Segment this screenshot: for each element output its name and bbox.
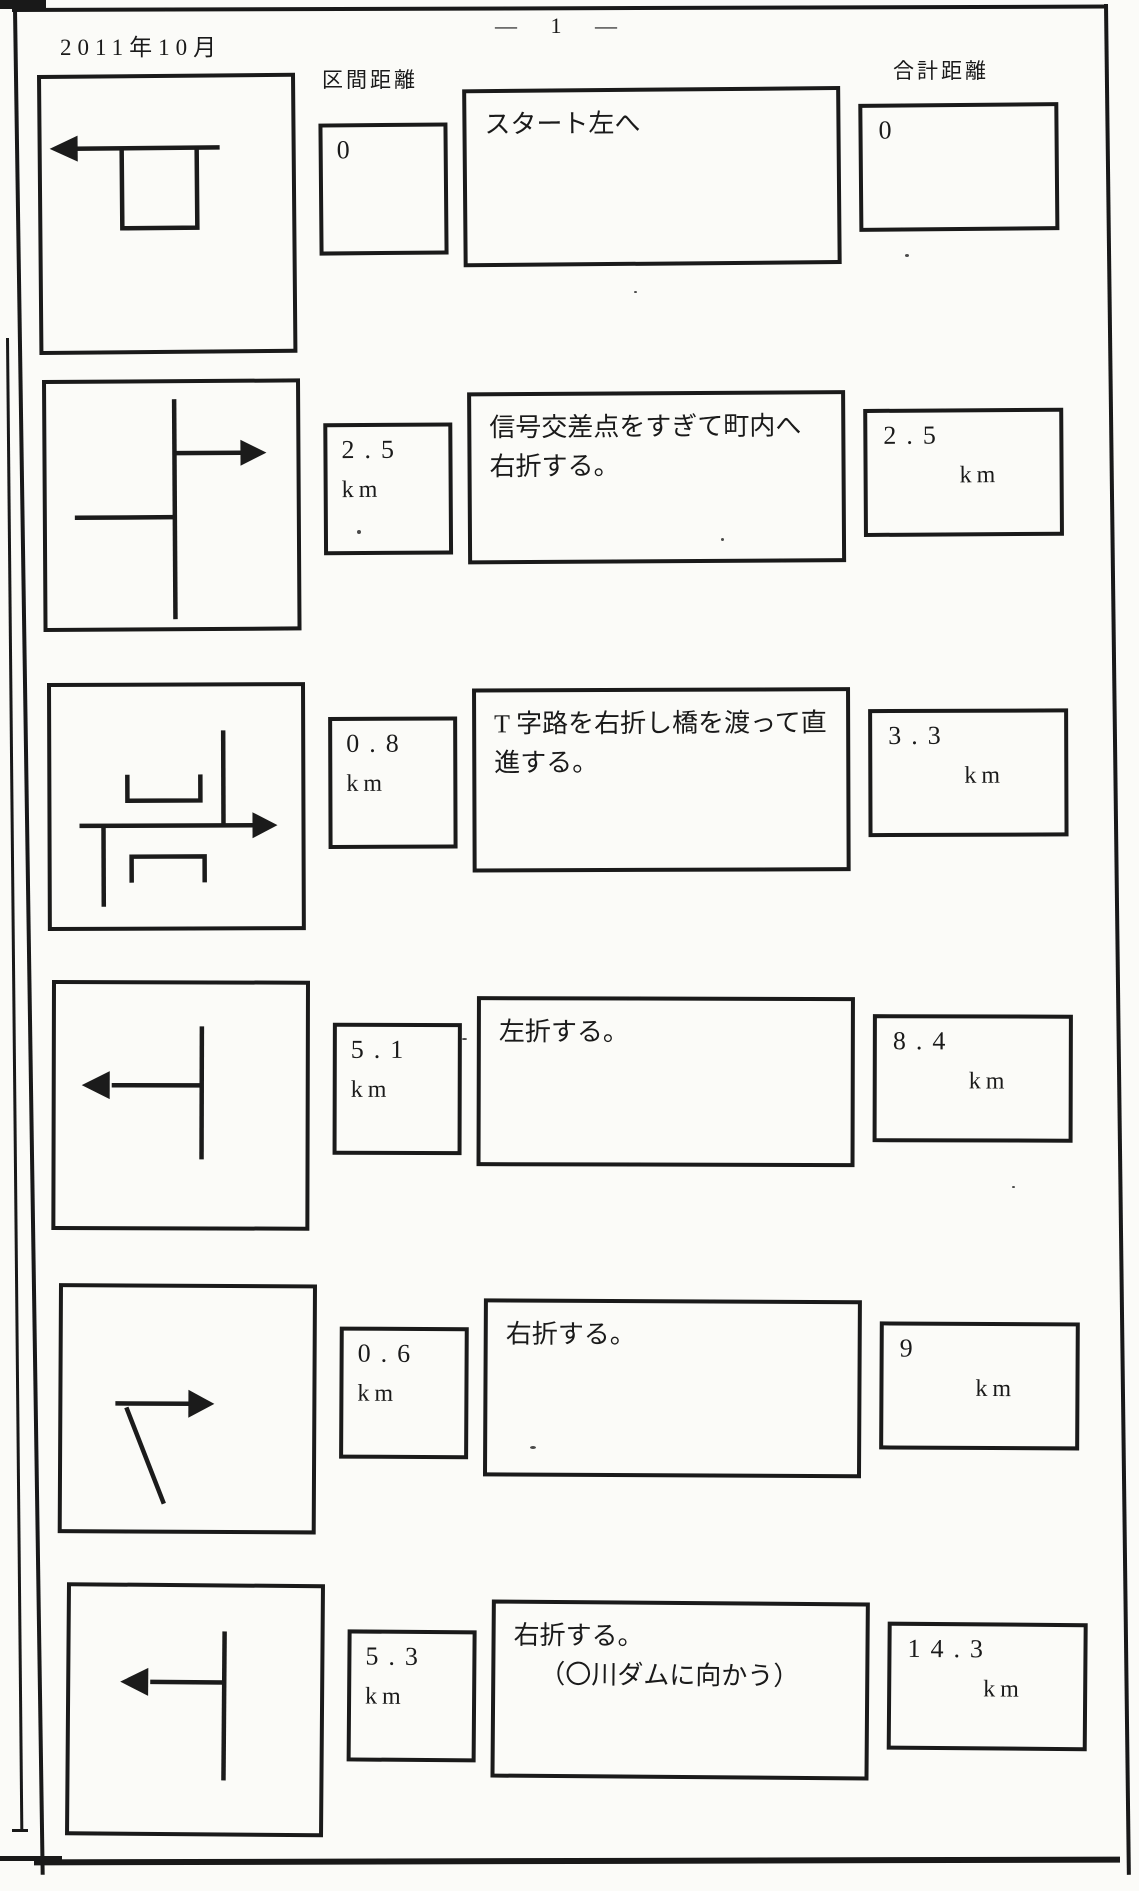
page-number: — 1 — xyxy=(495,13,631,39)
section-distance-unit: km xyxy=(351,1077,458,1104)
t-junction-route-arrow-left-icon xyxy=(55,984,306,1227)
route-diagram-box xyxy=(42,378,302,632)
route-diagram-box xyxy=(51,980,310,1231)
total-distance-value: 3.3 xyxy=(888,720,1064,751)
instruction-text: T 字路を右折し橋を渡って直進する。 xyxy=(494,703,828,782)
route-diagram-box xyxy=(47,682,306,931)
total-distance-box: 14.3 km xyxy=(887,1622,1088,1752)
instruction-text: 信号交差点をすぎて町内へ右折する。 xyxy=(489,406,823,486)
section-distance-unit xyxy=(337,176,444,177)
total-distance-box: 9 km xyxy=(879,1321,1080,1450)
instruction-box: 信号交差点をすぎて町内へ右折する。 xyxy=(467,390,846,564)
instruction-box: 左折する。 xyxy=(477,996,855,1167)
route-row: 2.5 km 信号交差点をすぎて町内へ右折する。 2.5 km xyxy=(0,373,1139,680)
section-distance-box: 2.5 km xyxy=(323,422,453,555)
section-distance-box: 5.1 km xyxy=(333,1023,462,1155)
route-row: 0.8 km T 字路を右折し橋を渡って直進する。 3.3 km xyxy=(0,679,1139,983)
route-diagram-box xyxy=(37,73,297,355)
scan-corner-blotch xyxy=(0,0,46,9)
section-distance-unit: km xyxy=(342,477,449,505)
total-distance-unit: km xyxy=(983,1676,1083,1704)
section-distance-box: 5.3 km xyxy=(347,1629,477,1762)
total-distance-unit: km xyxy=(960,462,1060,490)
section-distance-value: 5.3 xyxy=(365,1642,472,1673)
total-distance-unit xyxy=(955,156,1055,157)
route-diagram-box xyxy=(58,1283,317,1534)
total-distance-box: 2.5 km xyxy=(863,408,1064,537)
total-distance-box: 3.3 km xyxy=(868,708,1068,837)
section-distance-unit: km xyxy=(346,771,453,798)
t-junction-route-arrow-left-icon xyxy=(69,1586,321,1833)
page-border-top xyxy=(12,5,1108,12)
section-distance-value: 2.5 xyxy=(341,435,448,466)
section-distance-value: 0.6 xyxy=(358,1339,465,1370)
crossroad-route-arrow-right-icon xyxy=(46,382,297,628)
total-distance-value: 2.5 xyxy=(883,420,1059,451)
instruction-text-line2: （〇川ダムに向かう） xyxy=(513,1655,847,1697)
route-row: 0 スタート左へ 0 xyxy=(0,65,1139,375)
instruction-text: 右折する。 xyxy=(513,1616,847,1658)
total-distance-unit: km xyxy=(975,1376,1075,1404)
section-distance-box: 0.6 km xyxy=(339,1327,469,1460)
section-distance-value: 0 xyxy=(337,134,444,165)
section-distance-value: 0.8 xyxy=(346,729,453,759)
instruction-text: 右折する。 xyxy=(506,1314,840,1355)
fork-route-arrow-right-icon xyxy=(62,1287,313,1530)
instruction-box: 右折する。 （〇川ダムに向かう） xyxy=(490,1600,869,1781)
total-distance-box: 0 xyxy=(858,102,1059,232)
instruction-box: 右折する。 xyxy=(483,1298,862,1478)
total-distance-value: 8.4 xyxy=(893,1026,1069,1056)
route-row: 5.1 km 左折する。 8.4 km xyxy=(0,980,1139,1283)
instruction-text: スタート左へ xyxy=(484,102,818,144)
route-diagram-box xyxy=(65,1582,325,1837)
page-date: 2011年10月 xyxy=(60,28,222,62)
route-row: 0.6 km 右折する。 9 km xyxy=(0,1283,1139,1589)
instruction-box: スタート左へ xyxy=(462,86,842,267)
section-distance-unit: km xyxy=(357,1381,464,1409)
total-distance-value: 9 xyxy=(900,1334,1076,1365)
total-distance-unit: km xyxy=(964,762,1064,789)
total-distance-value: 14.3 xyxy=(907,1634,1083,1665)
section-distance-value: 5.1 xyxy=(351,1035,458,1065)
total-distance-box: 8.4 km xyxy=(873,1014,1073,1143)
route-row: 5.3 km 右折する。 （〇川ダムに向かう） 14.3 km xyxy=(0,1582,1139,1891)
start-box-route-arrow-left-icon xyxy=(41,77,293,351)
t-junction-bridge-route-arrow-right-icon xyxy=(51,686,302,927)
section-distance-unit: km xyxy=(365,1684,472,1712)
total-distance-value: 0 xyxy=(878,114,1054,146)
section-distance-box: 0.8 km xyxy=(328,717,457,849)
section-distance-box: 0 xyxy=(318,122,448,255)
instruction-text: 左折する。 xyxy=(499,1012,833,1052)
route-book-page: 2011年10月 — 1 — 区間距離 合計距離 0 スタート左へ 0 xyxy=(0,0,1139,1875)
instruction-box: T 字路を右折し橋を渡って直進する。 xyxy=(472,687,851,872)
total-distance-unit: km xyxy=(969,1068,1069,1095)
